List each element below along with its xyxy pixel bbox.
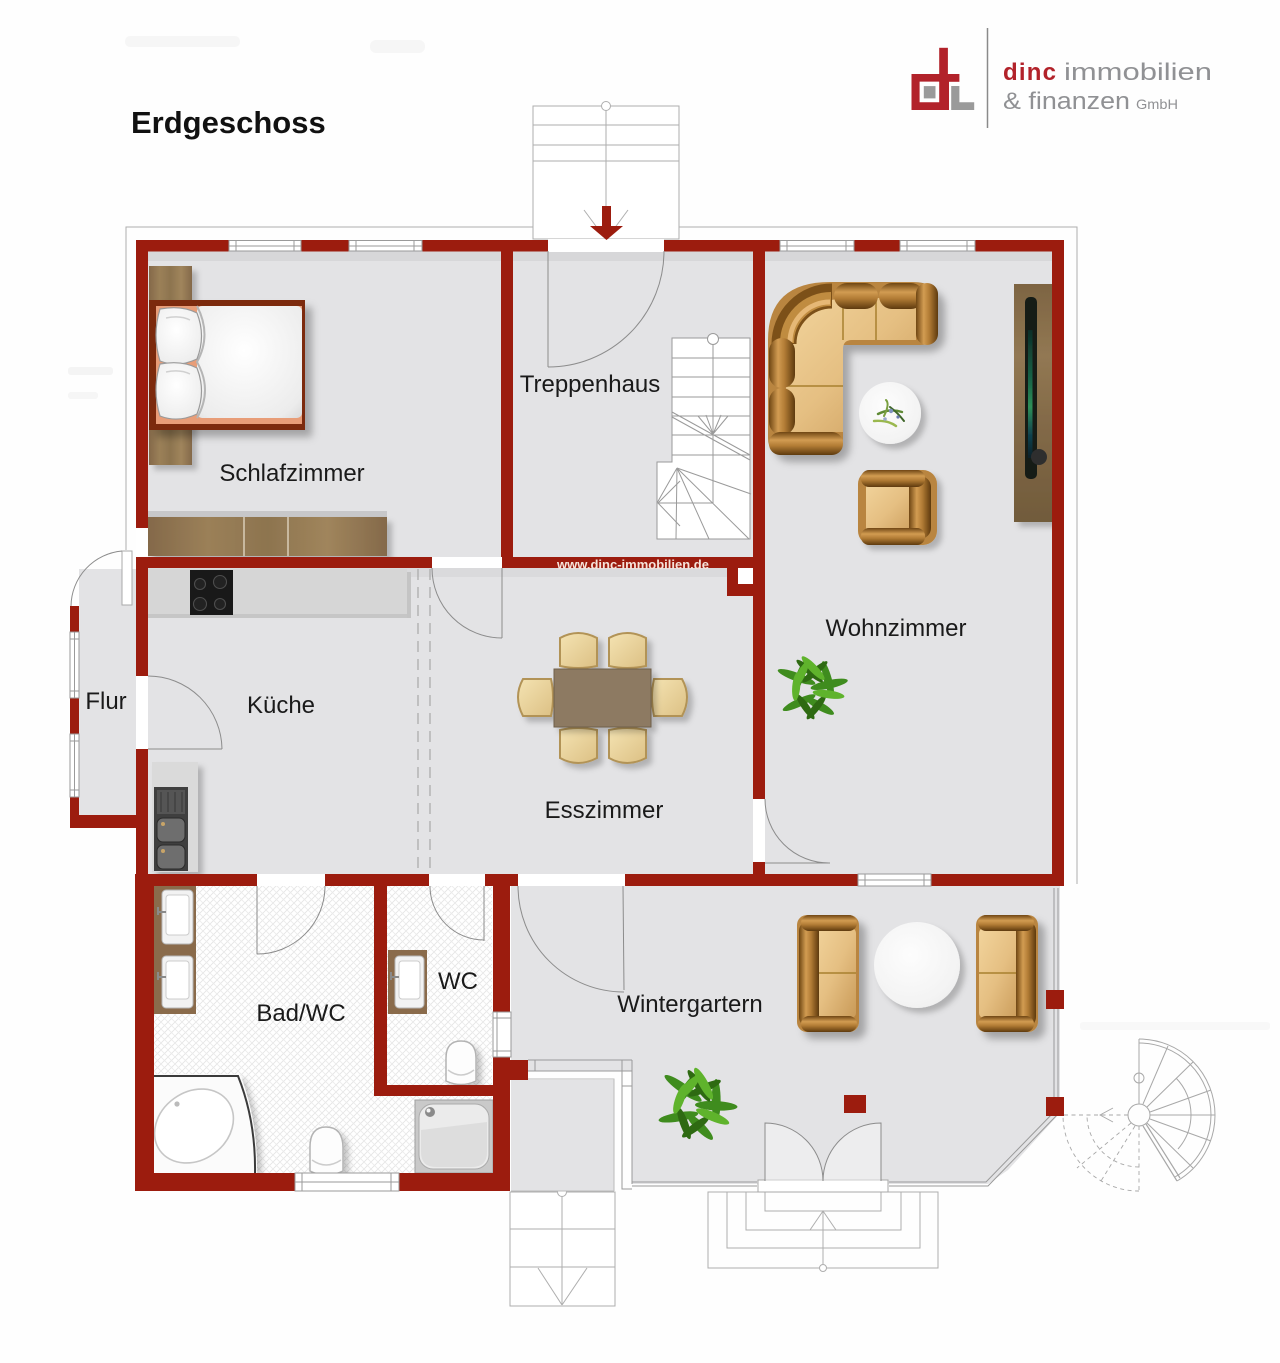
svg-text:Treppenhaus: Treppenhaus xyxy=(520,371,661,398)
svg-text:dinc: dinc xyxy=(1003,59,1056,86)
svg-text:immobilien: immobilien xyxy=(1064,59,1212,86)
svg-text:Wohnzimmer: Wohnzimmer xyxy=(826,615,967,642)
svg-text:Schlafzimmer: Schlafzimmer xyxy=(219,460,364,487)
svg-text:WC: WC xyxy=(438,968,478,995)
svg-text:GmbH: GmbH xyxy=(1136,96,1178,112)
svg-text:Esszimmer: Esszimmer xyxy=(545,797,664,824)
svg-text:Wintergartern: Wintergartern xyxy=(617,991,762,1018)
svg-text:Bad/WC: Bad/WC xyxy=(256,1000,345,1027)
svg-text:Küche: Küche xyxy=(247,692,315,719)
svg-text:& finanzen: & finanzen xyxy=(1003,88,1130,115)
svg-text:www.dinc-immobilien.de: www.dinc-immobilien.de xyxy=(556,557,709,572)
svg-text:Erdgeschoss: Erdgeschoss xyxy=(131,105,326,140)
svg-text:Flur: Flur xyxy=(85,688,126,715)
